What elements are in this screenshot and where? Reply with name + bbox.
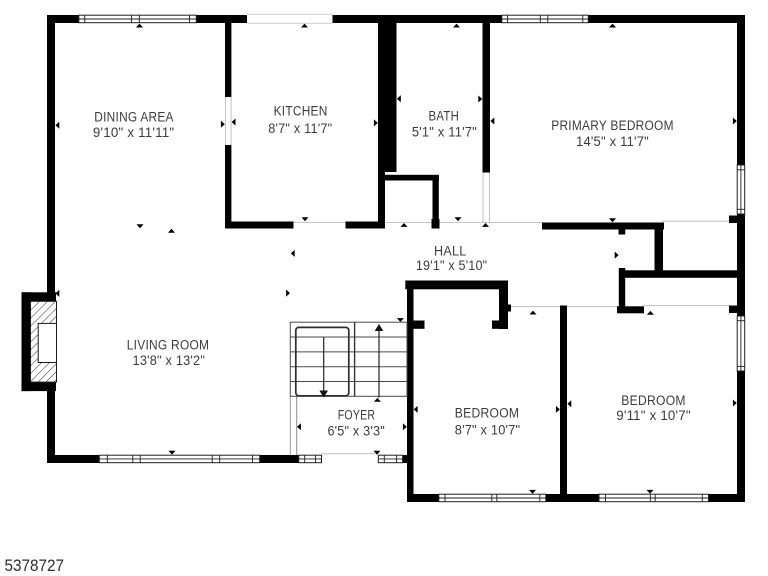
- svg-text:KITCHEN: KITCHEN: [274, 104, 328, 119]
- svg-text:9'11" x 10'7": 9'11" x 10'7": [616, 408, 691, 423]
- svg-text:19'1" x 5'10": 19'1" x 5'10": [416, 258, 488, 273]
- svg-text:LIVING ROOM: LIVING ROOM: [127, 337, 210, 352]
- svg-text:8'7" x 10'7": 8'7" x 10'7": [455, 422, 521, 437]
- svg-text:DINING AREA: DINING AREA: [94, 110, 174, 125]
- svg-text:BEDROOM: BEDROOM: [455, 406, 520, 421]
- svg-text:PRIMARY BEDROOM: PRIMARY BEDROOM: [551, 118, 674, 133]
- svg-text:8'7" x 11'7": 8'7" x 11'7": [268, 121, 332, 136]
- svg-text:BEDROOM: BEDROOM: [621, 393, 686, 408]
- svg-text:6'5" x 3'3": 6'5" x 3'3": [327, 424, 385, 439]
- svg-text:HALL: HALL: [434, 243, 467, 258]
- svg-text:9'10" x 11'11": 9'10" x 11'11": [93, 125, 175, 140]
- svg-text:BATH: BATH: [429, 109, 460, 124]
- svg-text:5378727: 5378727: [5, 556, 65, 575]
- svg-text:5'1" x 11'7": 5'1" x 11'7": [412, 125, 477, 140]
- svg-text:13'8" x 13'2": 13'8" x 13'2": [133, 353, 206, 368]
- svg-text:FOYER: FOYER: [338, 408, 376, 423]
- svg-text:14'5" x 11'7": 14'5" x 11'7": [576, 134, 649, 149]
